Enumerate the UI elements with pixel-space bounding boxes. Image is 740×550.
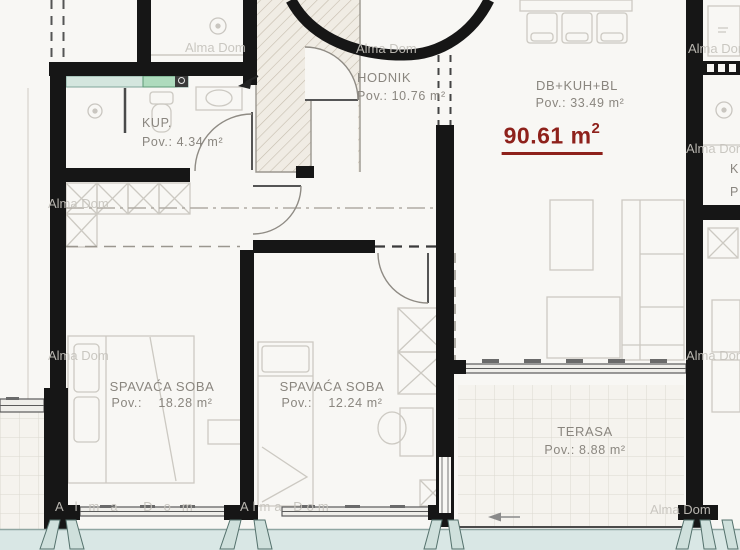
- bed-2: [258, 342, 313, 506]
- glass-door-inset: [439, 457, 451, 513]
- watermark: Alma Dom: [55, 499, 204, 514]
- watermark: Alma Dom: [48, 196, 109, 211]
- neighbor-label-k: K: [730, 163, 739, 176]
- neighbor-label-p: P: [730, 186, 739, 199]
- chest: [208, 420, 242, 444]
- watermark: Alma Dom: [240, 499, 333, 514]
- watermark: Alma Dom: [356, 41, 417, 56]
- watermark: Alma Dom: [686, 141, 740, 156]
- room-area-kup: Pov.: 4.34 m²: [142, 136, 223, 149]
- watermark: Alma Dom: [686, 348, 740, 363]
- vanity-sink: [196, 87, 242, 110]
- watermark: Alma Dom: [185, 40, 246, 55]
- rug: [550, 200, 593, 270]
- room-label-kup: KUP.: [142, 117, 172, 130]
- sofa: [622, 200, 684, 360]
- neighbor-left-window: [0, 397, 44, 412]
- neighbor-checker-window: [703, 61, 740, 75]
- room-label-bedroom2: SPAVAĆA SOBA: [280, 380, 385, 393]
- room-label-terrace: TERASA: [557, 425, 613, 438]
- terrace-slider: [464, 359, 686, 373]
- room-area-hodnik: Pov.: 10.76 m²: [357, 90, 446, 103]
- chair: [378, 412, 406, 444]
- door-corridor: [253, 186, 301, 234]
- dining-set: [520, 0, 632, 43]
- room-area-bedroom2: Pov.: 12.24 m²: [282, 397, 383, 410]
- room-area-terrace: Pov.: 8.88 m²: [544, 444, 625, 457]
- total-area: 90.61 m2: [502, 122, 603, 155]
- room-area-living: Pov.: 33.49 m²: [536, 97, 625, 110]
- total-area-value: 90.61 m: [504, 123, 592, 149]
- room-label-living: DB+KUH+BL: [536, 79, 618, 92]
- total-area-sup: 2: [592, 120, 601, 137]
- wardrobe-row: [66, 183, 190, 247]
- neighbor-terrace-floor: [0, 412, 44, 530]
- room-label-bedroom1: SPAVAĆA SOBA: [110, 380, 215, 393]
- floor-plan: KUP. Pov.: 4.34 m² HODNIK Pov.: 10.76 m²…: [0, 0, 740, 550]
- watermark: Alma Dom: [48, 348, 109, 363]
- room-area-bedroom1: Pov.: 18.28 m²: [112, 397, 213, 410]
- door-bedroom2: [378, 253, 428, 303]
- room-label-hodnik: HODNIK: [357, 71, 411, 84]
- watermark: Alma Dom: [650, 502, 711, 517]
- watermark: Alma Dom: [688, 41, 740, 56]
- coffee-table: [547, 297, 620, 358]
